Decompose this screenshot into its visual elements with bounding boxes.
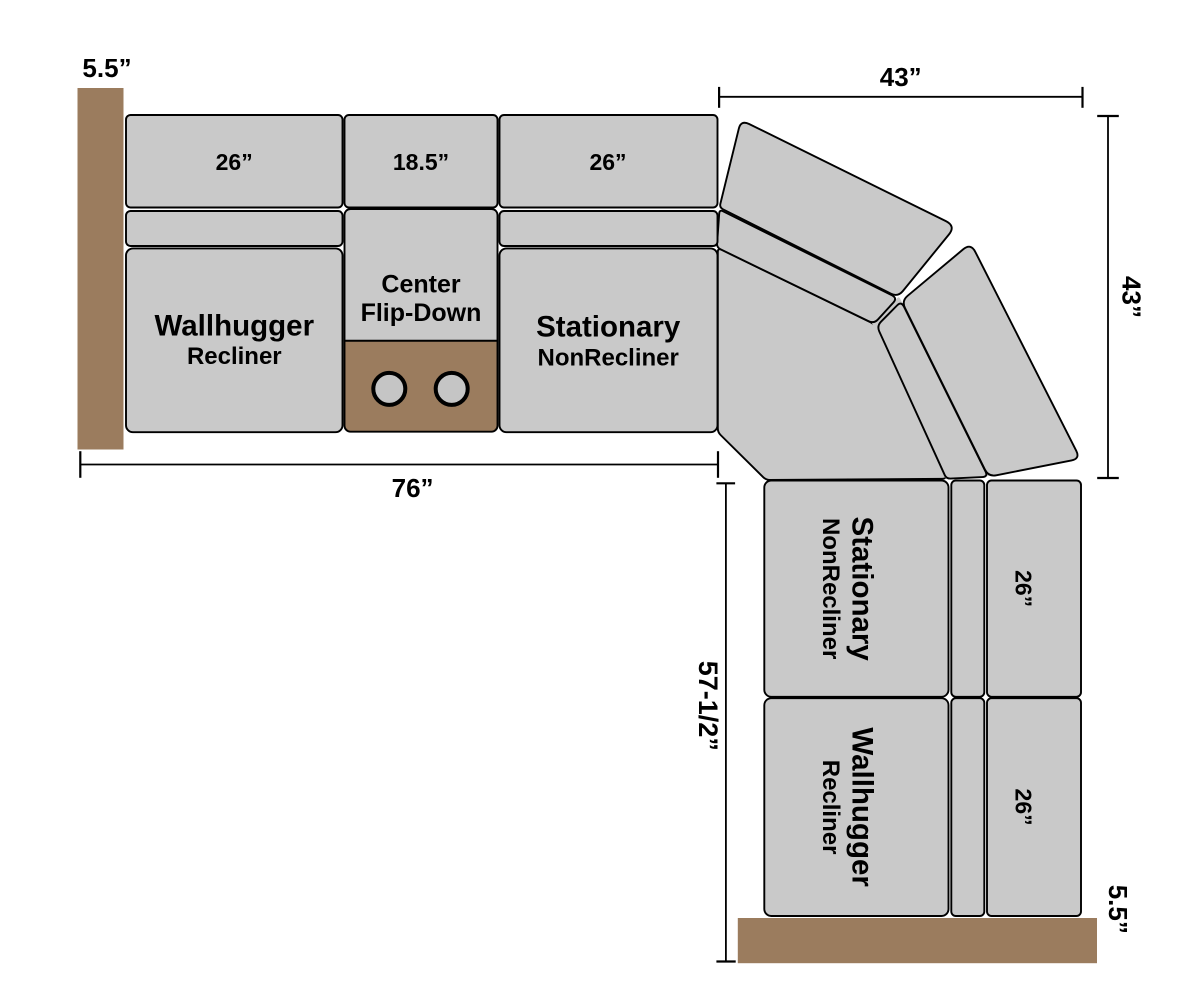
svg-text:26”: 26”: [1011, 789, 1037, 826]
svg-text:Wallhugger: Wallhugger: [155, 310, 315, 343]
svg-text:NonRecliner: NonRecliner: [817, 518, 844, 659]
svg-text:5.5”: 5.5”: [82, 53, 131, 83]
svg-text:76”: 76”: [392, 473, 434, 503]
svg-text:NonRecliner: NonRecliner: [538, 344, 679, 371]
svg-text:43”: 43”: [880, 62, 922, 92]
svg-text:Stationary: Stationary: [845, 517, 878, 662]
svg-text:Wallhugger: Wallhugger: [845, 727, 878, 887]
svg-text:26”: 26”: [1011, 570, 1037, 607]
svg-text:5.5”: 5.5”: [1103, 885, 1133, 934]
svg-text:26”: 26”: [216, 149, 253, 175]
svg-text:57-1/2”: 57-1/2”: [693, 661, 723, 751]
svg-text:Center: Center: [381, 271, 460, 299]
svg-text:Stationary: Stationary: [536, 310, 681, 343]
svg-text:18.5”: 18.5”: [393, 149, 449, 175]
svg-text:Recliner: Recliner: [187, 343, 282, 370]
svg-text:Flip-Down: Flip-Down: [361, 299, 482, 327]
svg-text:Recliner: Recliner: [817, 760, 844, 855]
svg-text:43”: 43”: [1116, 276, 1146, 318]
svg-text:26”: 26”: [589, 149, 626, 175]
